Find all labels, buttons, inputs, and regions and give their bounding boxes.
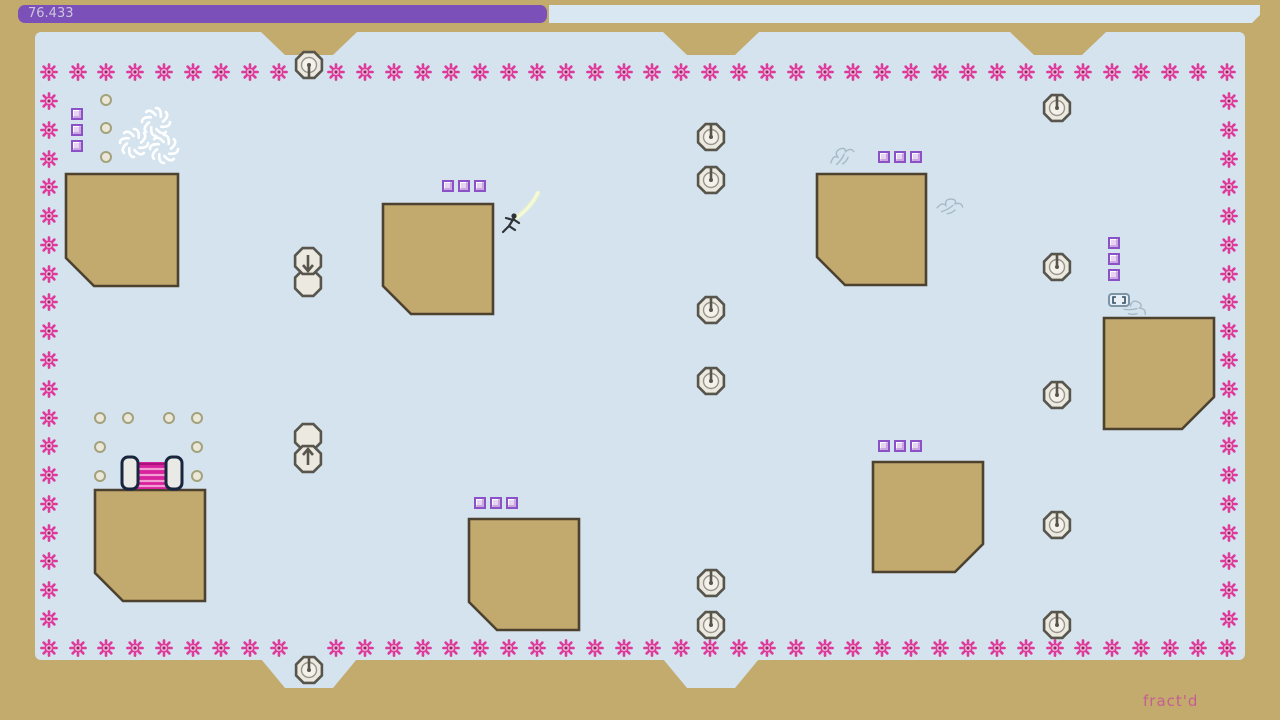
toggle-mine	[122, 412, 134, 424]
border-mine	[212, 639, 230, 657]
border-mine	[1220, 466, 1238, 484]
terrain-block	[93, 488, 207, 603]
border-mine	[442, 639, 460, 657]
border-mine	[40, 121, 58, 139]
border-mine	[1161, 639, 1179, 657]
terrain-block	[381, 202, 495, 316]
border-mine	[97, 63, 115, 81]
gauss-turret	[1040, 508, 1074, 542]
border-mine	[615, 63, 633, 81]
gold-piece	[894, 440, 906, 452]
gold-piece	[910, 440, 922, 452]
border-mine	[1220, 293, 1238, 311]
gold-piece	[894, 151, 906, 163]
gold-piece	[71, 108, 83, 120]
border-mine	[701, 639, 719, 657]
border-notch-bottom	[663, 659, 759, 688]
border-mine	[40, 610, 58, 628]
border-mine	[1103, 639, 1121, 657]
border-mine	[873, 63, 891, 81]
border-mine	[758, 63, 776, 81]
border-mine	[672, 639, 690, 657]
border-mine	[1220, 581, 1238, 599]
launch-pad	[290, 422, 326, 478]
border-mine	[1220, 552, 1238, 570]
border-mine	[40, 92, 58, 110]
border-mine	[40, 524, 58, 542]
border-mine	[873, 639, 891, 657]
border-mine	[1220, 351, 1238, 369]
border-mine	[327, 63, 345, 81]
gold-piece	[474, 180, 486, 192]
terrain-block	[871, 460, 985, 574]
border-mine	[931, 639, 949, 657]
border-mine	[40, 351, 58, 369]
border-mine	[1161, 63, 1179, 81]
toggle-mine	[94, 470, 106, 482]
border-mine	[1220, 524, 1238, 542]
gold-piece	[71, 124, 83, 136]
border-mine	[1220, 121, 1238, 139]
toggle-mine	[94, 412, 106, 424]
border-mine	[730, 63, 748, 81]
timer-bar-fill: 76.433	[18, 5, 547, 23]
gauss-turret	[694, 566, 728, 600]
level-name: fract'd	[1143, 692, 1198, 710]
border-mine	[787, 63, 805, 81]
border-mine	[184, 63, 202, 81]
terrain-block	[815, 172, 928, 287]
border-mine	[500, 639, 518, 657]
gold-piece	[458, 180, 470, 192]
border-mine	[414, 63, 432, 81]
gauss-turret	[694, 120, 728, 154]
border-mine	[1220, 150, 1238, 168]
gauss-turret	[694, 608, 728, 642]
border-mine	[40, 207, 58, 225]
terrain-block	[64, 172, 180, 288]
border-mine	[1046, 639, 1064, 657]
gold-piece	[878, 440, 890, 452]
border-mine	[557, 63, 575, 81]
border-mine	[471, 639, 489, 657]
border-mine	[270, 63, 288, 81]
border-mine	[586, 63, 604, 81]
hud-timer-bar: 76.433	[0, 0, 1280, 28]
gold-piece	[506, 497, 518, 509]
border-mine	[643, 639, 661, 657]
terrain-block	[1102, 316, 1216, 431]
border-mine	[1220, 236, 1238, 254]
exit-door	[120, 454, 184, 492]
gauss-turret	[1040, 91, 1074, 125]
border-mine	[586, 639, 604, 657]
border-mine	[40, 639, 58, 657]
border-mine	[356, 63, 374, 81]
border-mine	[1220, 178, 1238, 196]
border-mine	[787, 639, 805, 657]
border-mine	[902, 63, 920, 81]
scribble-mark	[826, 140, 856, 168]
border-mine	[40, 552, 58, 570]
border-mine	[40, 409, 58, 427]
border-mine	[356, 639, 374, 657]
border-mine	[442, 63, 460, 81]
border-mine	[988, 63, 1006, 81]
border-mine	[40, 322, 58, 340]
border-mine	[97, 639, 115, 657]
gauss-turret	[694, 364, 728, 398]
border-mine	[615, 639, 633, 657]
border-mine	[1132, 63, 1150, 81]
border-mine	[414, 639, 432, 657]
border-mine	[701, 63, 719, 81]
border-mine	[40, 466, 58, 484]
border-mine	[1218, 639, 1236, 657]
toggle-mine	[94, 441, 106, 453]
border-mine	[557, 639, 575, 657]
border-mine	[758, 639, 776, 657]
toggle-mine	[191, 412, 203, 424]
border-mine	[1220, 495, 1238, 513]
toggle-mine	[163, 412, 175, 424]
border-mine	[1220, 322, 1238, 340]
border-mine	[1017, 639, 1035, 657]
border-mine	[1220, 92, 1238, 110]
border-mine	[126, 639, 144, 657]
border-mine	[1074, 63, 1092, 81]
border-mine	[40, 380, 58, 398]
border-mine	[500, 63, 518, 81]
border-mine	[270, 639, 288, 657]
border-mine	[155, 63, 173, 81]
timer-bar-track	[549, 5, 1260, 23]
gold-piece	[1108, 253, 1120, 265]
border-mine	[40, 581, 58, 599]
border-mine	[241, 63, 259, 81]
play-area[interactable]	[35, 32, 1245, 660]
gauss-turret	[1040, 250, 1074, 284]
border-mine	[1074, 639, 1092, 657]
border-mine	[730, 639, 748, 657]
ghost-drone	[1108, 293, 1130, 307]
border-mine	[69, 639, 87, 657]
timer-value: 76.433	[28, 5, 74, 23]
swirl-drone	[147, 132, 181, 166]
border-mine	[844, 63, 862, 81]
player-ninja	[490, 185, 550, 245]
border-mine	[643, 63, 661, 81]
border-mine	[672, 63, 690, 81]
border-mine	[40, 236, 58, 254]
toggle-mine	[100, 94, 112, 106]
border-mine	[69, 63, 87, 81]
border-mine	[40, 495, 58, 513]
toggle-mine	[191, 470, 203, 482]
border-mine	[528, 63, 546, 81]
border-mine	[1220, 265, 1238, 283]
border-mine	[1189, 63, 1207, 81]
launch-pad	[290, 246, 326, 302]
border-mine	[1220, 610, 1238, 628]
border-mine	[212, 63, 230, 81]
border-mine	[385, 639, 403, 657]
gauss-turret	[694, 293, 728, 327]
border-mine	[40, 150, 58, 168]
border-mine	[1132, 639, 1150, 657]
gauss-turret	[292, 48, 326, 82]
border-mine	[816, 639, 834, 657]
border-mine	[988, 639, 1006, 657]
border-mine	[528, 639, 546, 657]
gold-piece	[71, 140, 83, 152]
border-mine	[155, 639, 173, 657]
border-mine	[816, 63, 834, 81]
gold-piece	[490, 497, 502, 509]
gauss-turret	[292, 653, 326, 687]
border-mine	[844, 639, 862, 657]
terrain-block	[467, 517, 581, 632]
gold-piece	[442, 180, 454, 192]
border-mine	[385, 63, 403, 81]
border-mine	[471, 63, 489, 81]
border-mine	[1103, 63, 1121, 81]
border-mine	[40, 293, 58, 311]
border-mine	[931, 63, 949, 81]
border-mine	[959, 639, 977, 657]
gold-piece	[1108, 237, 1120, 249]
gauss-turret	[1040, 378, 1074, 412]
border-mine	[1017, 63, 1035, 81]
border-mine	[241, 639, 259, 657]
scribble-mark	[935, 190, 965, 218]
border-mine	[184, 639, 202, 657]
gold-piece	[878, 151, 890, 163]
border-mine	[1046, 63, 1064, 81]
toggle-mine	[100, 122, 112, 134]
border-mine	[40, 437, 58, 455]
toggle-mine	[191, 441, 203, 453]
gauss-turret	[694, 163, 728, 197]
swirl-drone	[117, 126, 151, 160]
gauss-turret	[1040, 608, 1074, 642]
gold-piece	[1108, 269, 1120, 281]
game-window: 76.433 fract'd	[0, 0, 1280, 720]
border-mine	[1189, 639, 1207, 657]
toggle-mine	[100, 151, 112, 163]
border-mine	[959, 63, 977, 81]
border-mine	[1220, 380, 1238, 398]
gold-piece	[910, 151, 922, 163]
border-mine	[1218, 63, 1236, 81]
border-mine	[1220, 437, 1238, 455]
border-mine	[40, 63, 58, 81]
gold-piece	[474, 497, 486, 509]
border-mine	[40, 265, 58, 283]
border-mine	[327, 639, 345, 657]
border-mine	[902, 639, 920, 657]
border-mine	[40, 178, 58, 196]
border-mine	[126, 63, 144, 81]
border-mine	[1220, 409, 1238, 427]
border-mine	[1220, 207, 1238, 225]
